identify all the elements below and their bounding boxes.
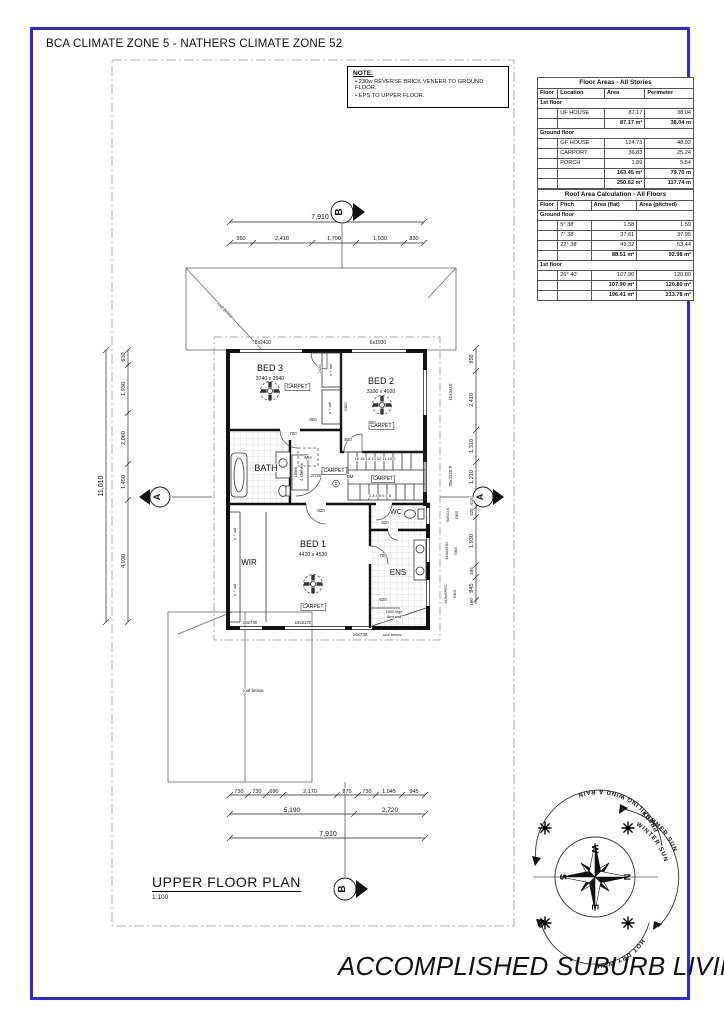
note-title: NOTE: (353, 70, 503, 77)
table-cell: 87.17 m² (604, 118, 645, 128)
section-marker-b-letter: B (337, 885, 348, 892)
sun-icon (539, 917, 552, 930)
table-row: 88.51 m²92.98 m² (538, 250, 694, 260)
table-cell (538, 138, 558, 148)
door-size: 720 (379, 553, 387, 558)
roof-below-label: roof below (243, 688, 265, 693)
table-cell: 1.89 (604, 158, 645, 168)
room-bed1: BED 1 (300, 539, 326, 549)
roof-below-label: roof below (383, 632, 402, 637)
table-cell: 53.44 (637, 240, 694, 250)
dim-left: 1,930 (121, 382, 127, 396)
table-row: 1st floor (538, 260, 694, 270)
dim-left: 1,450 (121, 475, 127, 489)
arc-label-prevailing: PREVAILING WIND & RAIN (576, 788, 660, 832)
finish-carpet: CARPET (286, 384, 308, 390)
window-tag: 25x1210 F (448, 465, 453, 486)
dim-top: 2,410 (275, 236, 289, 242)
table-cell: 37.95 (637, 230, 694, 240)
dim-bottom: 2,720 (382, 807, 399, 814)
dim-top: 950 (236, 236, 245, 242)
stair-treads-upper: 16 15 14 13 12 11 10 9 (355, 456, 397, 461)
note-item: 230w REVERSE BRICK VENEER TO GROUND FLOO… (355, 79, 503, 91)
arc-arrowhead (532, 856, 541, 866)
table-cell: 26° 40' (558, 270, 591, 280)
door-size: 620 (379, 597, 387, 602)
table-cell (538, 280, 558, 290)
window-tag: 6x1930 (370, 340, 387, 346)
table-cell: 120.80 (637, 270, 694, 280)
table-cell (558, 280, 591, 290)
dim-top: 1,790 (327, 236, 341, 242)
dim-bottom: 730 (252, 789, 261, 795)
note-item: EPS TO UPPER FLOOR. (355, 93, 503, 99)
column-header: Perimeter (645, 89, 694, 99)
table-cell: CARPORT (558, 148, 605, 158)
compass-rose: W N E S PREVAILING WIND & RAIN SUMMER SU… (532, 788, 679, 968)
dim-right: 945 (469, 583, 475, 592)
linen-label: Linen (293, 466, 298, 477)
table-cell (538, 220, 558, 230)
table-cell (538, 270, 558, 280)
dim-bottom: 870 (342, 789, 351, 795)
table-row: 163.45 m²79.70 m (538, 168, 694, 178)
sun-icon (539, 822, 552, 835)
table-cell: 163.45 m² (604, 168, 645, 178)
compass-east: E (590, 904, 600, 910)
dim-bottom-overall: 7,910 (319, 831, 337, 838)
window-obs-tag: OBS (452, 589, 457, 598)
compass-south: S (558, 874, 568, 880)
table-cell (558, 118, 605, 128)
dim-top: 830 (409, 236, 418, 242)
plan-title: UPPER FLOOR PLAN (152, 874, 301, 892)
table-cell (558, 290, 591, 300)
door-size: 620 (381, 520, 389, 525)
window-tag: 9x610 A (445, 507, 450, 522)
column-header: Floor (538, 89, 558, 99)
room-bed3-size: 3740 x 2940 (256, 376, 285, 382)
builder-title: ACCOMPLISHED SUBURB LIVING (338, 951, 690, 982)
table-cell (538, 230, 558, 240)
table-cell: 48.92 (645, 138, 694, 148)
window-tag: 343x1930 (444, 541, 449, 559)
table-cell: 107.90 m² (591, 280, 637, 290)
plan-scale: 1:100 (152, 894, 301, 901)
table-cell (538, 108, 558, 118)
dim-right: 160 (469, 598, 474, 606)
dim-bottom: 945 (409, 789, 418, 795)
table-cell (538, 148, 558, 158)
table-cell: 196.41 m² (591, 290, 637, 300)
table-row: 5° 38'1.581.59 (538, 220, 694, 230)
table-cell: 213.78 m² (637, 290, 694, 300)
dim-top: 1,930 (373, 236, 387, 242)
table-cell (538, 250, 558, 260)
room-bed2-size: 3100 x 4020 (367, 389, 396, 395)
smoke-alarm-label: S (335, 481, 338, 486)
table-row: PORCH1.895.54 (538, 158, 694, 168)
table-cell: 79.70 m (645, 168, 694, 178)
column-header: Area (flat) (591, 200, 637, 210)
table-cell (538, 158, 558, 168)
table-cell: 117.74 m (645, 178, 694, 188)
table-cell: 120.80 m² (637, 280, 694, 290)
dim-left: 4,930 (121, 554, 127, 568)
tiled-wall-note: 1000 high (386, 610, 403, 614)
roof-below-label: roof below (216, 301, 235, 320)
table-cell: GF HOUSE (558, 138, 605, 148)
floor-areas-table: Floor Areas - All StoriesFloorLocationAr… (537, 77, 694, 189)
floor_areas-grid: Floor Areas - All StoriesFloorLocationAr… (537, 77, 694, 189)
section-row: Ground floor (538, 128, 694, 138)
robe-size: 2450 (343, 402, 348, 412)
section-row: 1st floor (538, 98, 694, 108)
door-size: 820 (344, 437, 352, 442)
table-row: 250.62 m²117.74 m (538, 178, 694, 188)
column-header: Location (558, 89, 605, 99)
table-cell: 5.54 (645, 158, 694, 168)
table-title: Floor Areas - All Stories (538, 78, 694, 89)
dim-bottom: 730 (234, 789, 243, 795)
table-cell: 124.73 (604, 138, 645, 148)
door-size: 2/720 (311, 473, 323, 478)
table-cell: 37.61 (591, 230, 637, 240)
table-cell: 7° 38' (558, 230, 591, 240)
robe-size: 2420 (317, 364, 322, 374)
robe-label: s + rail (328, 364, 333, 376)
dim-bottom: 2,170 (303, 789, 317, 795)
table-row: Ground floor (538, 210, 694, 220)
stair-treads-lower: 2 3 4 5 6 7 8 (369, 493, 392, 498)
tiled-floors (230, 432, 426, 626)
room-wir: WIR (241, 558, 257, 567)
linen-shelves-label: 4 shelves (299, 463, 304, 481)
dim-bottom: 5,190 (284, 807, 301, 814)
table-cell: 38.04 (645, 108, 694, 118)
column-header: Area (pitched) (637, 200, 694, 210)
plan-title-block: UPPER FLOOR PLAN 1:100 (152, 874, 301, 901)
table-cell: 87.17 (604, 108, 645, 118)
table-cell: 92.98 m² (637, 250, 694, 260)
robe-label: s + rail (232, 528, 237, 540)
finish-carpet: CARPET (373, 476, 393, 482)
section-marker-b-letter: B (334, 208, 345, 215)
table-cell (558, 250, 591, 260)
table-cell: 49.32 (591, 240, 637, 250)
dm-label: DM (347, 474, 354, 479)
section-row: Ground floor (538, 210, 694, 220)
dim-right: 425 (469, 508, 474, 516)
table-cell: 38.04 m (645, 118, 694, 128)
arc-arrowhead (619, 804, 628, 814)
table-cell: 1.59 (637, 220, 694, 230)
roof-outline-lower (168, 612, 312, 782)
dim-right: 1,930 (469, 534, 475, 548)
dim-bottom: 690 (269, 789, 278, 795)
window-tag: 16x2170 (295, 620, 312, 625)
tiled-wall-note: tiled wall (387, 615, 402, 619)
door-size: 820 (309, 417, 317, 422)
table-row: UF HOUSE87.1738.04 (538, 108, 694, 118)
window-tag: 343xSPEC (443, 584, 448, 604)
table-cell (538, 168, 558, 178)
table-cell: 22° 38' (558, 240, 591, 250)
finish-carpet: CARPET (302, 604, 324, 610)
room-wc: WC (390, 509, 402, 516)
dim-right: 1,210 (469, 470, 475, 484)
robe-label: s + rail (327, 402, 332, 414)
sun-icon (622, 822, 635, 835)
dim-bottom: 730 (362, 789, 371, 795)
dim-left-overall: 11,010 (98, 475, 105, 496)
table-cell: 88.51 m² (591, 250, 637, 260)
table-cell: 5° 38' (558, 220, 591, 230)
window-tag: 10x3410 (448, 383, 453, 400)
table-row: 196.41 m²213.78 m² (538, 290, 694, 300)
dim-right: 495 (469, 567, 474, 575)
table-cell: PORCH (558, 158, 605, 168)
room-bed3: BED 3 (257, 363, 283, 373)
table-cell: UF HOUSE (558, 108, 605, 118)
table-row: 87.17 m²38.04 m (538, 118, 694, 128)
column-header: Area (604, 89, 645, 99)
window-tag: 16x730 (243, 620, 258, 625)
window-obs-tag: OBS (453, 546, 458, 555)
door-size: 720 (289, 431, 297, 436)
table-cell (558, 178, 605, 188)
sun-icon (622, 917, 635, 930)
table-cell: 250.62 m² (604, 178, 645, 188)
finish-carpet: CARPET (323, 468, 345, 474)
table-cell (538, 118, 558, 128)
table-row: 22° 38'49.3253.44 (538, 240, 694, 250)
table-row: 26° 40'107.90120.80 (538, 270, 694, 280)
column-header: Pitch (558, 200, 591, 210)
robe-label: s + rail (232, 584, 237, 596)
table-cell: 25.24 (645, 148, 694, 158)
table-row: 1st floor (538, 98, 694, 108)
note-list: 230w REVERSE BRICK VENEER TO GROUND FLOO… (355, 79, 503, 99)
section-row: 1st floor (538, 260, 694, 270)
column-header: Floor (538, 200, 558, 210)
compass-west: W (590, 845, 600, 854)
table-cell (538, 240, 558, 250)
section-marker-a-letter: A (152, 493, 162, 500)
table-cell: 1.58 (591, 220, 637, 230)
table-row: Ground floor (538, 128, 694, 138)
table-cell (538, 178, 558, 188)
dim-right: 1,310 (469, 439, 475, 453)
dim-left: 610 (121, 352, 127, 361)
table-cell: 36.83 (604, 148, 645, 158)
dim-left: 2,060 (121, 431, 127, 445)
arc-arrowhead (653, 921, 662, 930)
room-ens: ENS (390, 568, 406, 577)
table-cell: 107.90 (591, 270, 637, 280)
table-row: 107.90 m²120.80 m² (538, 280, 694, 290)
door-size: 820 (368, 420, 376, 425)
table-title: Roof Area Calculation - All Floors (538, 189, 694, 200)
table-row: 7° 38'37.6137.95 (538, 230, 694, 240)
table-cell (558, 168, 605, 178)
dim-top-overall: 7,910 (311, 214, 329, 221)
dim-right: 950 (469, 354, 475, 363)
dim-bottom: 1,045 (382, 789, 396, 795)
manhole-label: MH (304, 455, 311, 460)
dim-right: 2,410 (469, 393, 475, 407)
table-cell (538, 290, 558, 300)
area-tables: Floor Areas - All StoriesFloorLocationAr… (537, 77, 694, 301)
note-box: NOTE: 230w REVERSE BRICK VENEER TO GROUN… (347, 66, 509, 108)
compass-north: N (622, 874, 632, 881)
window-tag: 8x2410 (255, 340, 272, 346)
table-row: GF HOUSE124.7348.92 (538, 138, 694, 148)
roof-areas-table: Roof Area Calculation - All FloorsFloorP… (537, 189, 694, 301)
table-row: CARPORT36.8325.24 (538, 148, 694, 158)
room-bed1-size: 4420 x 4530 (299, 552, 328, 558)
window-tag: 16x730 (353, 632, 368, 637)
window-obs-tag: OBS (454, 510, 459, 519)
room-bath: BATH (254, 463, 277, 473)
roof_areas-grid: Roof Area Calculation - All FloorsFloorP… (537, 189, 694, 301)
room-bed2: BED 2 (368, 376, 394, 386)
section-marker-a-letter: A (475, 493, 485, 500)
door-size: 820 (317, 508, 325, 513)
dim-right: 615 (469, 497, 474, 505)
drawing-boundary (112, 60, 514, 926)
